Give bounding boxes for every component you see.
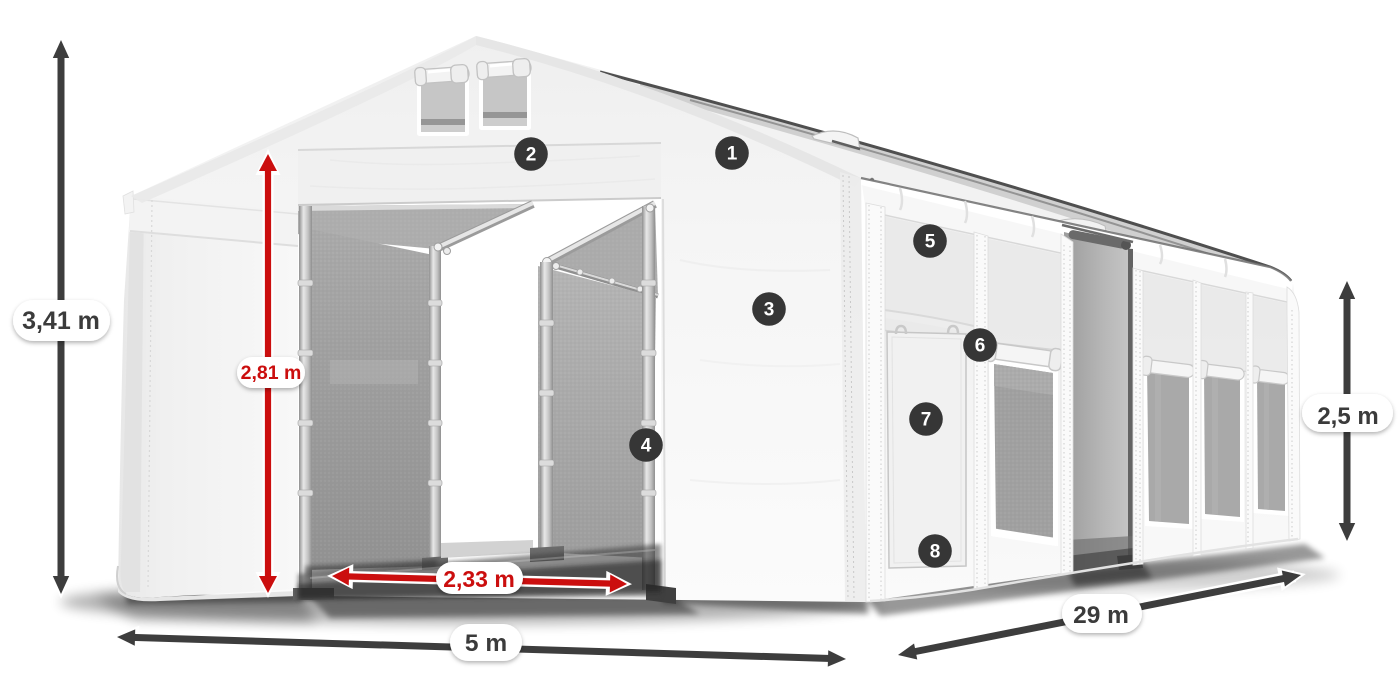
svg-text:7: 7	[921, 410, 932, 431]
svg-text:8: 8	[930, 542, 941, 563]
svg-text:5: 5	[925, 232, 936, 253]
svg-text:2,81 m: 2,81 m	[241, 362, 302, 384]
svg-text:6: 6	[975, 336, 986, 357]
svg-text:5 m: 5 m	[465, 630, 507, 657]
svg-text:3,41 m: 3,41 m	[22, 307, 100, 335]
svg-text:2: 2	[526, 145, 537, 166]
svg-text:4: 4	[641, 436, 652, 457]
svg-text:1: 1	[727, 144, 738, 165]
svg-text:2,33 m: 2,33 m	[443, 566, 515, 592]
svg-text:3: 3	[764, 300, 775, 321]
svg-text:29 m: 29 m	[1073, 602, 1129, 629]
svg-text:2,5 m: 2,5 m	[1317, 403, 1378, 430]
